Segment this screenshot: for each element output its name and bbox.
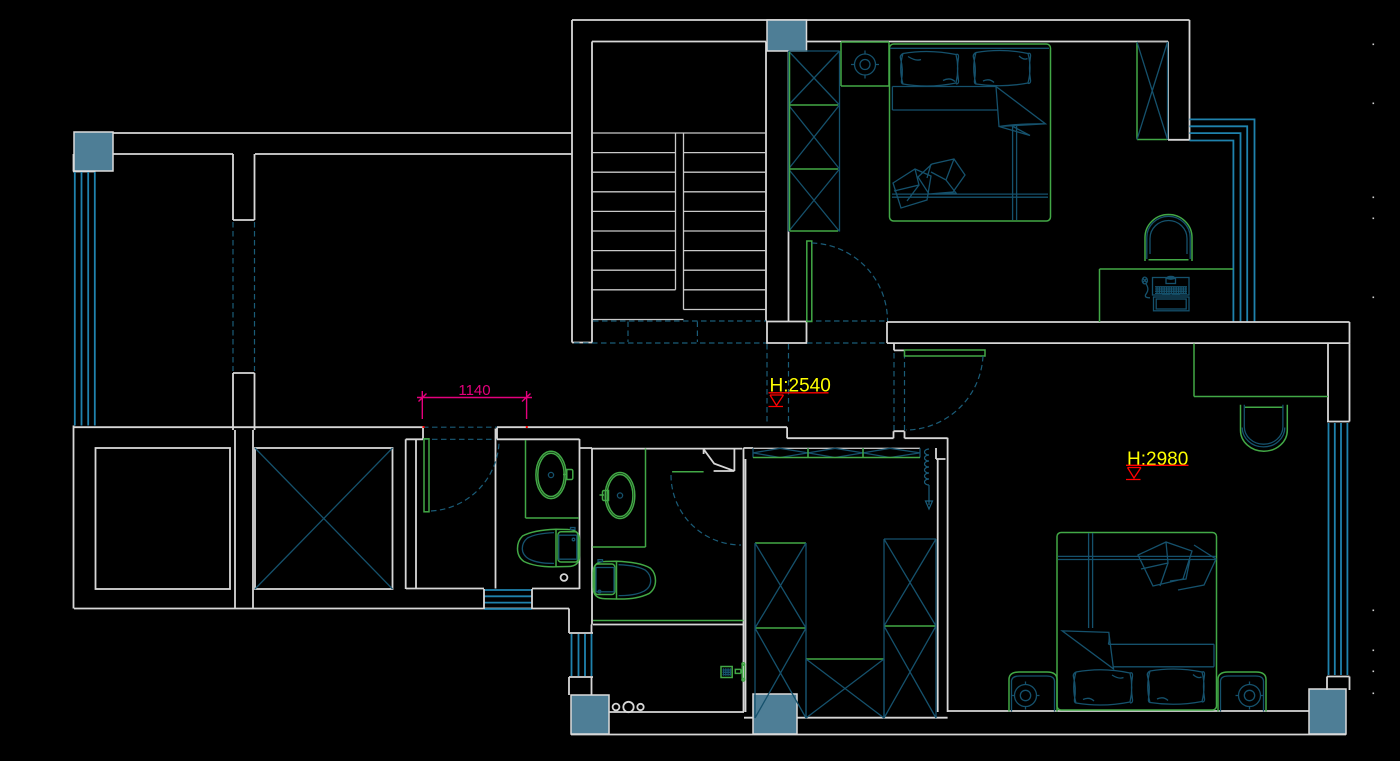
svg-text:1140: 1140	[458, 382, 490, 399]
